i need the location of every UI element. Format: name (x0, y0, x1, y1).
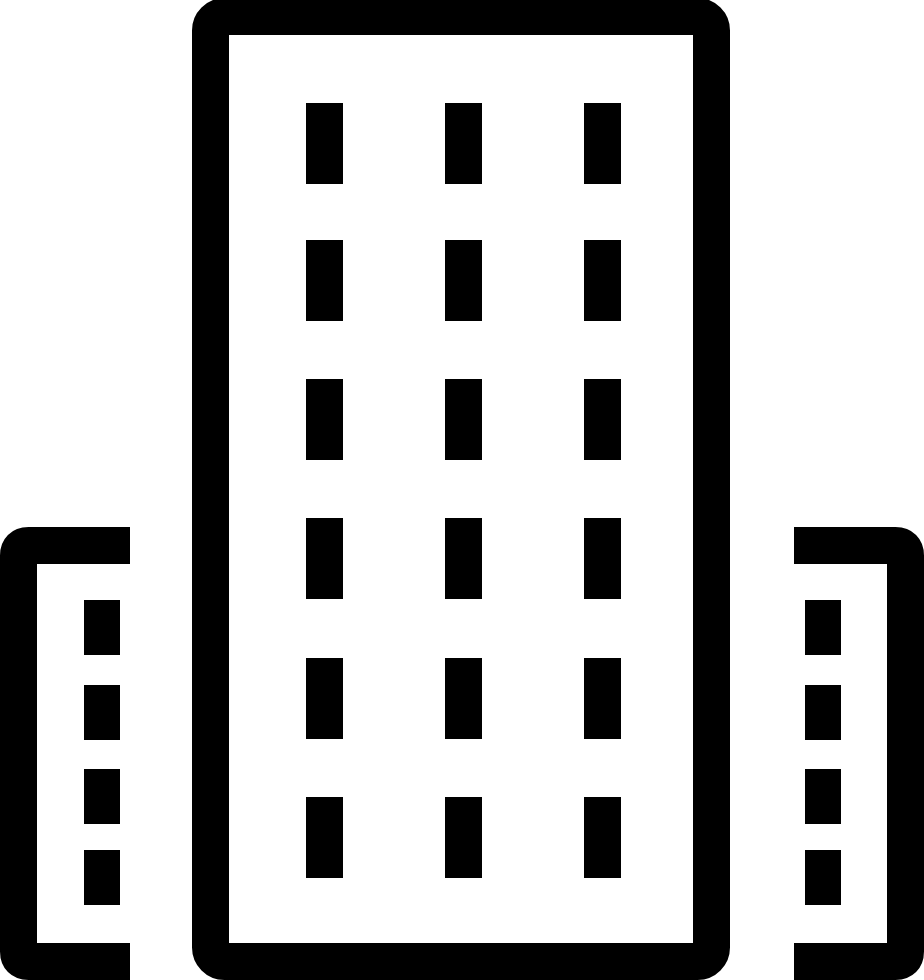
tower-window (584, 103, 621, 184)
office-building-icon (0, 0, 924, 980)
tower-window (584, 379, 621, 460)
tower-window (445, 240, 482, 321)
tower-window (306, 379, 343, 460)
tower-window (445, 103, 482, 184)
right-wing-window (805, 850, 841, 905)
right-wing-window (805, 685, 841, 740)
tower-window (445, 658, 482, 739)
tower-windows (306, 103, 621, 878)
tower-window (306, 797, 343, 878)
tower-window (584, 518, 621, 599)
left-wing-window (84, 600, 120, 655)
tower-window (445, 379, 482, 460)
left-wing-window (84, 685, 120, 740)
tower-window (584, 658, 621, 739)
tower-window (584, 797, 621, 878)
tower-window (306, 658, 343, 739)
tower-window (445, 797, 482, 878)
tower-window (584, 240, 621, 321)
tower-window (445, 518, 482, 599)
right-wing (794, 546, 906, 962)
tower-window (306, 240, 343, 321)
right-wing-window (805, 769, 841, 824)
tower-window (306, 518, 343, 599)
right-wing-window (805, 600, 841, 655)
left-wing-window (84, 850, 120, 905)
left-wing-window (84, 769, 120, 824)
left-wing (19, 546, 131, 962)
icon-canvas (0, 0, 924, 980)
tower-window (306, 103, 343, 184)
